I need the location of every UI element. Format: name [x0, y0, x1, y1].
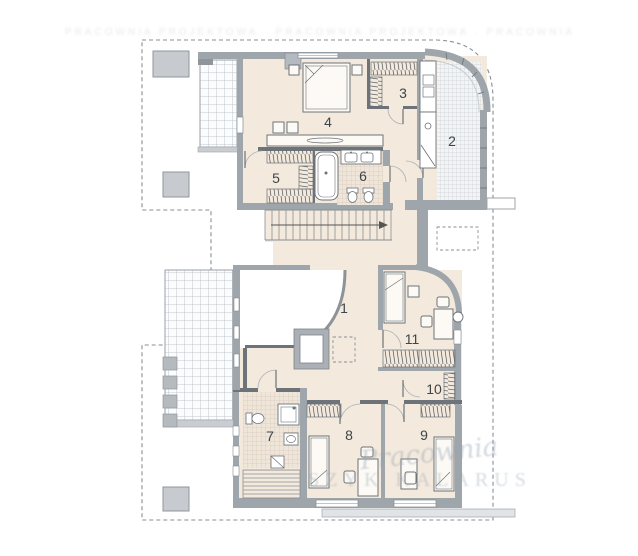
laundry-bench-area [243, 470, 300, 498]
wardrobe-shelf [267, 150, 313, 163]
room-label-4: 4 [324, 114, 332, 130]
shower [278, 404, 299, 425]
room-label-10: 10 [426, 381, 442, 397]
room-label-8: 8 [345, 427, 353, 443]
stool-right [287, 122, 298, 133]
sink [284, 433, 298, 445]
room-label-6: 6 [359, 168, 367, 184]
chimney-block-top [153, 51, 189, 77]
chimney-block-mid [163, 172, 189, 197]
window-room7-3 [233, 466, 239, 476]
room-6-bathroom [315, 150, 383, 205]
terrace-lower-left [163, 270, 235, 427]
window-room11-right [454, 330, 461, 344]
terrace-upper-left [198, 52, 240, 152]
wardrobe-shelf [307, 404, 341, 417]
desk [434, 309, 453, 339]
room-label-1: 1 [340, 300, 348, 316]
chair [437, 297, 449, 307]
room-label-5: 5 [272, 170, 280, 186]
exterior-landing [487, 198, 515, 209]
toilet [246, 413, 264, 424]
floor-plan-drawing: 1 2 3 4 5 6 7 8 9 10 11 PRACOWNIA PROJEK… [0, 0, 638, 556]
window-room4-left [237, 117, 243, 133]
window-room7-2 [233, 446, 239, 456]
chimney-block-bottom [163, 487, 189, 511]
wardrobe-shelf [370, 77, 382, 107]
window-hall-terrace-3 [234, 354, 239, 367]
room-label-7: 7 [266, 428, 274, 444]
bidet [363, 188, 374, 203]
window-room7-1 [233, 426, 239, 436]
wardrobe-shelf [421, 404, 450, 417]
balcony-slab [322, 509, 515, 517]
room-label-2: 2 [448, 133, 456, 149]
wardrobe-shelf [299, 166, 313, 189]
wardrobe-shelf [371, 62, 417, 75]
bathtub [315, 152, 338, 200]
washing-machine [271, 456, 284, 468]
room-10-wardrobe [444, 373, 455, 399]
dresser [267, 135, 383, 146]
porthole-window [453, 312, 463, 322]
cabinet [420, 112, 436, 168]
roof-window [437, 227, 478, 250]
window-hall-terrace-2 [234, 326, 239, 339]
chair [421, 316, 432, 327]
room-label-3: 3 [399, 85, 407, 101]
toilet [347, 188, 358, 203]
window-hall-terrace-1 [234, 298, 239, 311]
room-7-bathroom [243, 392, 300, 498]
nightstand-right [352, 65, 362, 75]
watermark-top-smudge: PRACOWNIA PROJEKTOWA · PRACOWNIA PROJEKT… [65, 27, 575, 38]
watermark-caps: SZYK KALARUS [308, 469, 532, 491]
nightstand-left [289, 65, 299, 75]
floor-plan-canvas: 1 2 3 4 5 6 7 8 9 10 11 PRACOWNIA PROJEK… [0, 0, 638, 556]
wardrobe-shelf [267, 189, 313, 203]
wardrobe-shelf [444, 373, 455, 399]
cabinet [420, 61, 436, 112]
stool-left [273, 122, 284, 133]
room-label-11: 11 [405, 331, 420, 347]
side-table [408, 286, 419, 297]
single-bed [384, 272, 405, 323]
